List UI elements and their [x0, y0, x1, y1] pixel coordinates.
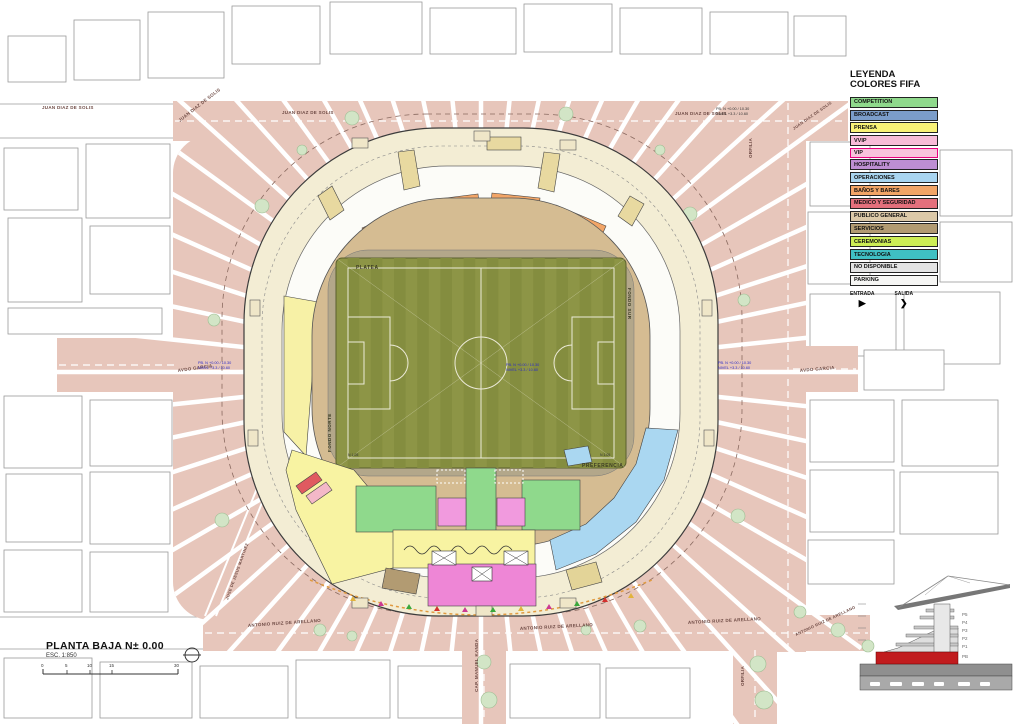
entrada: ENTRADA ▶: [850, 291, 874, 308]
pitch-note: N 1.05: [348, 453, 358, 457]
section-drawing: P5 P4 P3 P2 P1 PB: [858, 576, 1012, 690]
players-tunnel: [466, 468, 496, 534]
legend-item: NO DISPONIBLE: [850, 262, 938, 273]
entrada-label: ENTRADA: [850, 291, 874, 297]
title-block: PLANTA BAJA N± 0.00 ESC. 1:850: [46, 640, 164, 659]
entrada-arrow-icon: ▶: [850, 299, 874, 308]
legend-items: COMPETITION BROADCAST PRENSA VVIP VIP HO…: [850, 97, 938, 286]
legend-item: CEREMONIAS: [850, 236, 938, 247]
section-level-labels: P5 P4 P3 P2 P1 PB: [962, 612, 968, 659]
street-label-juan-diaz: JUAN DIAZ DE SOLIS: [282, 110, 334, 115]
section-roof: [894, 584, 1010, 610]
legend-item: BROADCAST: [850, 110, 938, 121]
sheet-title: PLANTA BAJA N± 0.00: [46, 640, 164, 652]
legend-item: PUBLICO GENERAL: [850, 211, 938, 222]
section-ground: [860, 664, 1012, 676]
stand-label-fondo-norte: FONDO NORTE: [327, 413, 332, 452]
legend-title: LEYENDA COLORES FIFA: [850, 70, 938, 91]
level-note: NIVEL +3.3 / 10.60: [716, 112, 748, 116]
section-level: P1: [962, 644, 968, 649]
level-note: PB. N +0.00 / 10.30: [718, 361, 751, 365]
street-label-orfilia: ORFILIA: [740, 665, 745, 686]
legend-item: PARKING: [850, 275, 938, 286]
legend-item: TECNOLOGIA: [850, 249, 938, 260]
stand-label-preferencia: PREFERENCIA: [582, 463, 623, 469]
zone-vip-west: [438, 498, 466, 526]
scale-tick: 30: [174, 663, 180, 668]
street-label-orfilia: ORFILIA: [748, 137, 753, 158]
scale-tick: 10: [87, 663, 93, 668]
legend-item: MEDICO Y SEGURIDAD: [850, 198, 938, 209]
stadium: [244, 128, 718, 616]
legend-title-line2: COLORES FIFA: [850, 80, 938, 90]
level-note: PB. N +0.00 / 10.30: [506, 363, 539, 367]
section-level: P4: [962, 620, 968, 625]
section-level: P2: [962, 636, 968, 641]
salida-chevron-icon: ❯: [894, 299, 913, 308]
salida: SALIDA ❯: [894, 291, 913, 308]
legend-gates: ENTRADA ▶ SALIDA ❯: [850, 291, 938, 308]
level-note: NIVEL +3.3 / 10.60: [718, 366, 750, 370]
level-note: PB. N +0.00 / 10.30: [716, 107, 749, 111]
zone-vip-east: [497, 498, 525, 526]
level-note: NIVEL +3.3 / 10.60: [198, 366, 230, 370]
stand-label-platea: PLATEA: [356, 265, 379, 271]
street-label-juan-diaz: JUAN DIAZ DE SOLIS: [42, 105, 94, 110]
site-plan-sheet: JUAN DIAZ DE SOLIS JUAN DIAZ DE SOLIS JU…: [0, 0, 1024, 724]
legend-item: OPERACIONES: [850, 172, 938, 183]
zone-competition-west: [356, 486, 436, 532]
level-note: PB. N +0.00 / 10.30: [198, 361, 231, 365]
legend-item: VIP: [850, 148, 938, 158]
sheet-scale: ESC. 1:850: [46, 653, 164, 659]
legend-item: HOSPITALITY: [850, 159, 938, 170]
legend-item: BAÑOS Y BARES: [850, 185, 938, 196]
level-note: NIVEL +3.3 / 10.60: [506, 368, 538, 372]
section-core: [934, 604, 950, 652]
legend-item: SERVICIOS: [850, 223, 938, 234]
street-label-cap-manuel: CAP. MANUEL KANDA: [474, 638, 479, 692]
salida-label: SALIDA: [894, 291, 913, 297]
pitch: [336, 258, 626, 468]
section-ground-floor-red: [876, 652, 958, 664]
section-level: PB: [962, 654, 968, 659]
legend-panel: LEYENDA COLORES FIFA COMPETITION BROADCA…: [850, 70, 938, 308]
scale-tick: 15: [109, 663, 115, 668]
legend-item: VVIP: [850, 135, 938, 146]
stand-label-fondo-sur: FONDO SUR: [627, 288, 632, 320]
legend-item: PRENSA: [850, 122, 938, 133]
section-level: P3: [962, 628, 968, 633]
zone-competition-east: [522, 480, 580, 530]
section-level: P5: [962, 612, 968, 617]
legend-item: COMPETITION: [850, 97, 938, 108]
pitch-note: N 1.05: [600, 453, 610, 457]
